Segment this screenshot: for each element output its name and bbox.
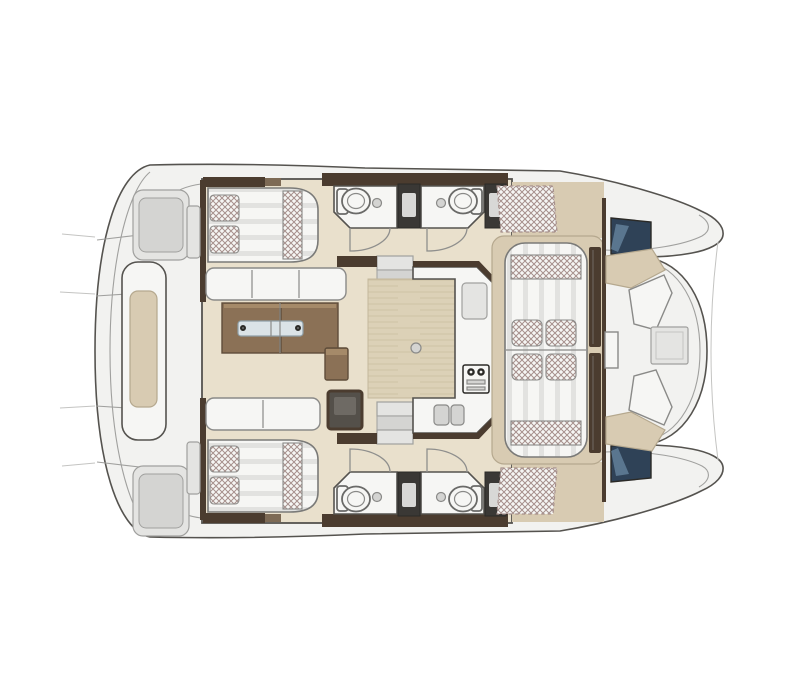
berth-fwd-pillow-2 xyxy=(210,226,239,253)
cooktop xyxy=(463,365,489,393)
sunpad-cushion-1 xyxy=(512,320,542,346)
berth-aft-headwall xyxy=(203,513,265,523)
toilet-3 xyxy=(337,486,370,512)
cabin-berth-fwd xyxy=(203,177,318,262)
saloon-wall-aft xyxy=(337,433,377,444)
platform-bench-cushion xyxy=(130,291,157,407)
galley-worktop-box xyxy=(462,283,487,319)
floorplan-canvas xyxy=(0,0,800,700)
toilet-1 xyxy=(337,189,370,215)
bulkhead-port xyxy=(200,180,206,302)
stairs-aft xyxy=(377,402,413,444)
berth-fwd-headwall xyxy=(203,177,265,187)
berth-aft-pillow-1 xyxy=(210,446,239,472)
helm-seat-fwd xyxy=(497,186,557,232)
sunpad-bolster-aft xyxy=(511,421,581,445)
cockpit-step xyxy=(605,332,618,368)
sunpad-cushion-3 xyxy=(512,354,542,380)
deck-panel-aft-inset xyxy=(139,474,183,528)
catamaran-floorplan xyxy=(0,0,800,700)
berth-aft-headwall-2 xyxy=(265,514,281,522)
sunpad-bolster-fwd xyxy=(511,255,581,279)
cabin-berth-aft xyxy=(203,440,318,523)
berth-aft-pillow-2 xyxy=(210,477,239,504)
side-cabinet xyxy=(325,348,348,380)
berth-fwd-runner xyxy=(283,191,302,259)
head-4-drain xyxy=(437,493,446,502)
berth-fwd-headwall-2 xyxy=(265,178,281,186)
shower-door-3 xyxy=(402,483,416,507)
head-2-drain xyxy=(437,199,446,208)
head-3-drain xyxy=(373,493,382,502)
dinette xyxy=(206,268,362,430)
chart-seat-box xyxy=(328,391,362,429)
toilet-2 xyxy=(449,189,482,215)
sunpad-cushion-4 xyxy=(546,354,576,380)
head-1-drain xyxy=(373,199,382,208)
berth-aft-runner xyxy=(283,443,302,509)
dinette-bench-fwd xyxy=(206,268,346,300)
hull-window-starboard xyxy=(187,442,200,494)
sunpad-cushion-2 xyxy=(546,320,576,346)
saloon-wall-fwd xyxy=(337,256,377,267)
saloon-wood-sole xyxy=(368,279,455,398)
bulkhead-starboard xyxy=(200,398,206,520)
hull-window-port xyxy=(187,206,200,258)
dinette-table xyxy=(222,303,338,353)
toilet-4 xyxy=(449,486,482,512)
sunpad-lounge xyxy=(505,243,587,457)
deck-panel-fwd-inset xyxy=(139,198,183,252)
table-leg-socket xyxy=(411,343,421,353)
galley-double-sink xyxy=(434,405,464,425)
helm-seat-aft xyxy=(497,468,557,514)
berth-fwd-pillow-1 xyxy=(210,195,239,221)
shower-door-1 xyxy=(402,193,416,217)
cockpit-table xyxy=(651,327,688,364)
boat-floorplan xyxy=(60,164,723,537)
